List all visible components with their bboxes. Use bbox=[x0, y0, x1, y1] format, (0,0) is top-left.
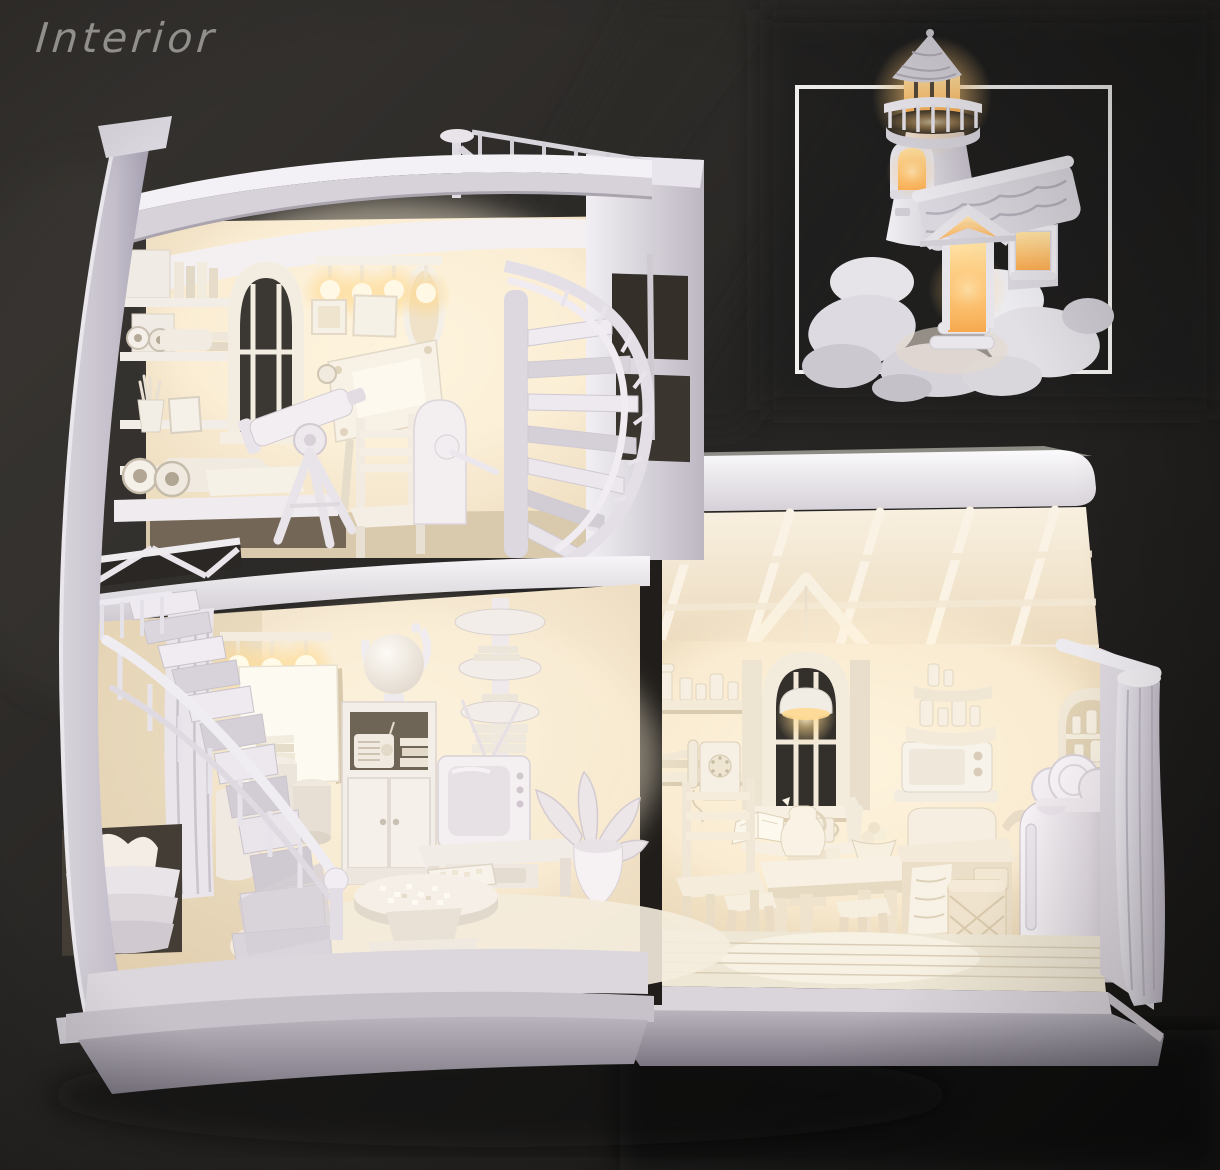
scene-svg bbox=[0, 0, 1220, 1170]
artwork-canvas: Interior bbox=[0, 0, 1220, 1170]
vignette bbox=[0, 0, 1220, 1170]
scene-title: Interior bbox=[34, 14, 220, 62]
